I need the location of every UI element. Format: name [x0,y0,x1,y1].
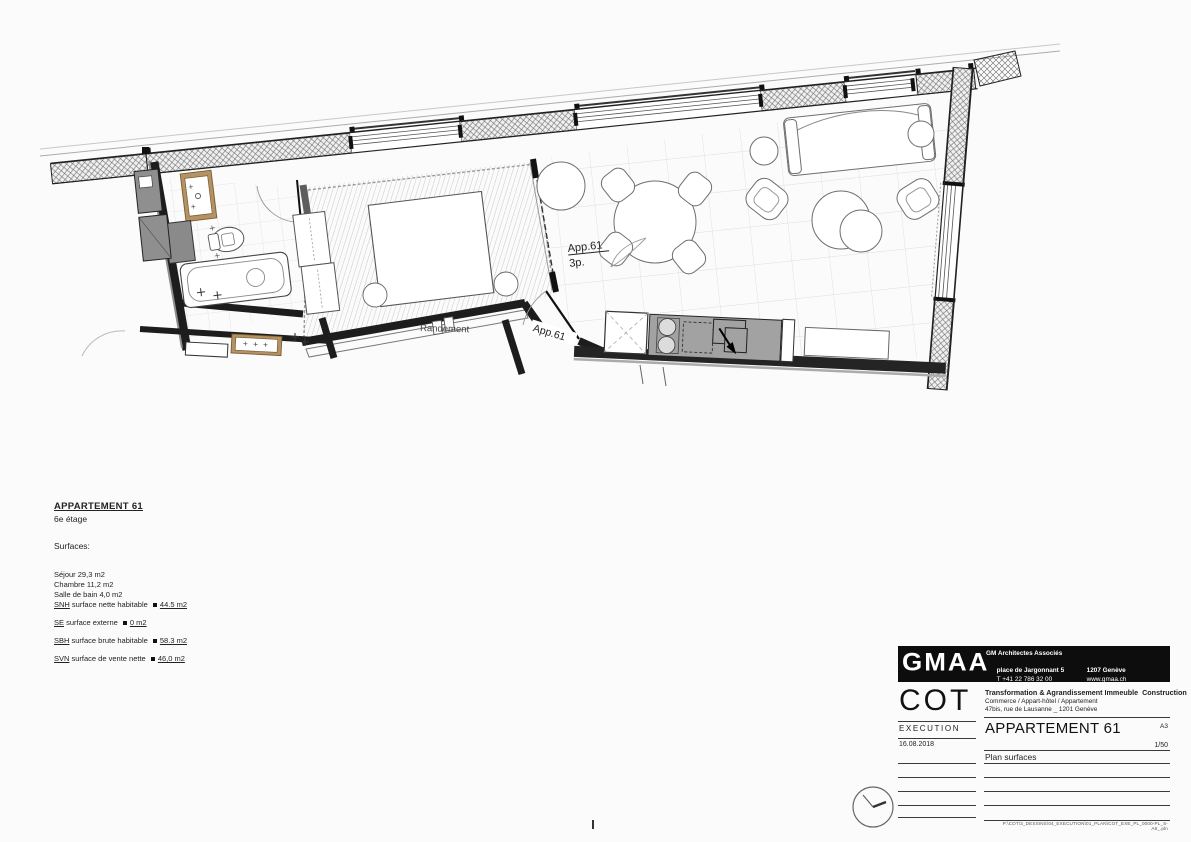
summary-section-label: Surfaces: [54,541,294,551]
scale-label: 1/50 [1154,742,1168,749]
room-line: Séjour 29,3 m2 [54,570,294,580]
clock-icon [850,784,896,830]
sideboard [804,327,889,359]
phase-label: EXECUTION [899,724,960,733]
total-line-svn: SVN surface de vente nette 46,0 m2 [54,654,294,663]
cooktop-burner [658,318,676,336]
firm-name: GM Architectes Associés [986,650,1062,658]
sheet-title: APPARTEMENT 61 [985,720,1121,737]
unit-rooms-label: 3p. [569,256,585,270]
bullet-square [153,639,157,643]
firm-banner: GMAA GM Architectes Associés place de Ja… [898,646,1170,682]
firm-logo: GMAA [902,648,989,677]
cooktop-burner [658,336,676,354]
facade-corner [974,51,1021,86]
bullet-square [151,657,155,661]
firm-phone: T +41 22 786 32 00 [997,676,1087,684]
total-line-sbh: SBH surface brute habitable 58.3 m2 [54,636,294,645]
file-path: P:\COT\3_DESSINS\04_EXECUTION\01_PLAN\CO… [1000,821,1168,831]
neighbour-fixtures [134,169,171,261]
firm-web: www.gmaa.ch [1087,676,1127,683]
shaft-label: Randement [420,323,470,335]
coffee-table [840,210,882,252]
title-block: GMAA GM Architectes Associés place de Ja… [898,646,1170,826]
format-label: A3 [1160,723,1168,730]
side-table [750,137,778,165]
washbasin-cabinet [180,170,217,221]
pouf [537,162,585,210]
floor-plan: App.61 3p. Randement App.61 [0,0,1191,480]
project-line2: Commerce / Appart-hôtel / Appartement [985,698,1098,705]
sheet-subtitle: Plan surfaces [985,752,1037,762]
bed [368,191,494,306]
bullet-square [153,603,157,607]
side-table [908,121,934,147]
nightstand [494,272,518,296]
summary-floor: 6e étage [54,514,294,524]
room-line: Salle de bain 4,0 m2 [54,590,294,600]
bullet-square [123,621,127,625]
corridor-basin [231,334,282,356]
date-label: 16.08.2018 [899,741,934,748]
room-line: Chambre 11,2 m2 [54,580,294,590]
plan-sheet: App.61 3p. Randement App.61 APPARTEMENT … [0,0,1191,842]
fold-mark [592,820,594,829]
project-line1: Transformation & Agrandissement Immeuble… [985,688,1187,697]
total-line-snh: SNH surface nette habitable 44.5 m2 [54,600,294,610]
surface-summary: APPARTEMENT 61 6e étage Surfaces: Séjour… [54,501,294,663]
total-line-se: SE surface externe 0 m2 [54,618,294,627]
summary-title: APPARTEMENT 61 [54,501,294,512]
project-code: COT [899,684,971,718]
project-line3: 47bis, rue de Lausanne _ 1201 Genève [985,706,1097,713]
corner-mark [142,147,149,154]
nightstand [363,283,387,307]
